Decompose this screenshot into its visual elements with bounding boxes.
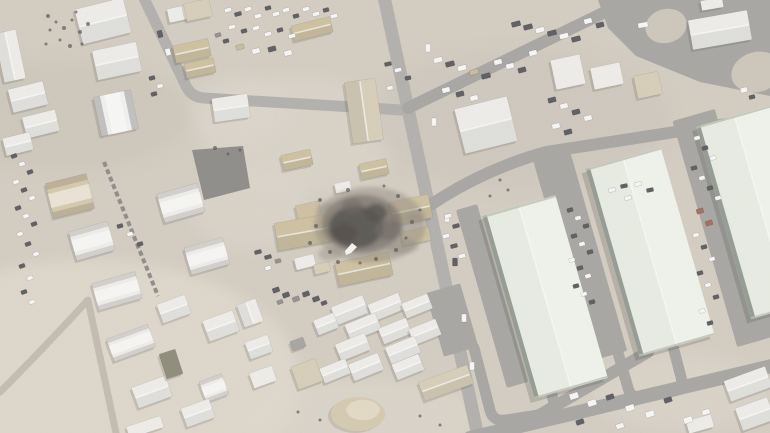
- satellite-image: [0, 0, 770, 433]
- satellite-scene: [0, 0, 770, 433]
- grain-overlay: [0, 0, 770, 433]
